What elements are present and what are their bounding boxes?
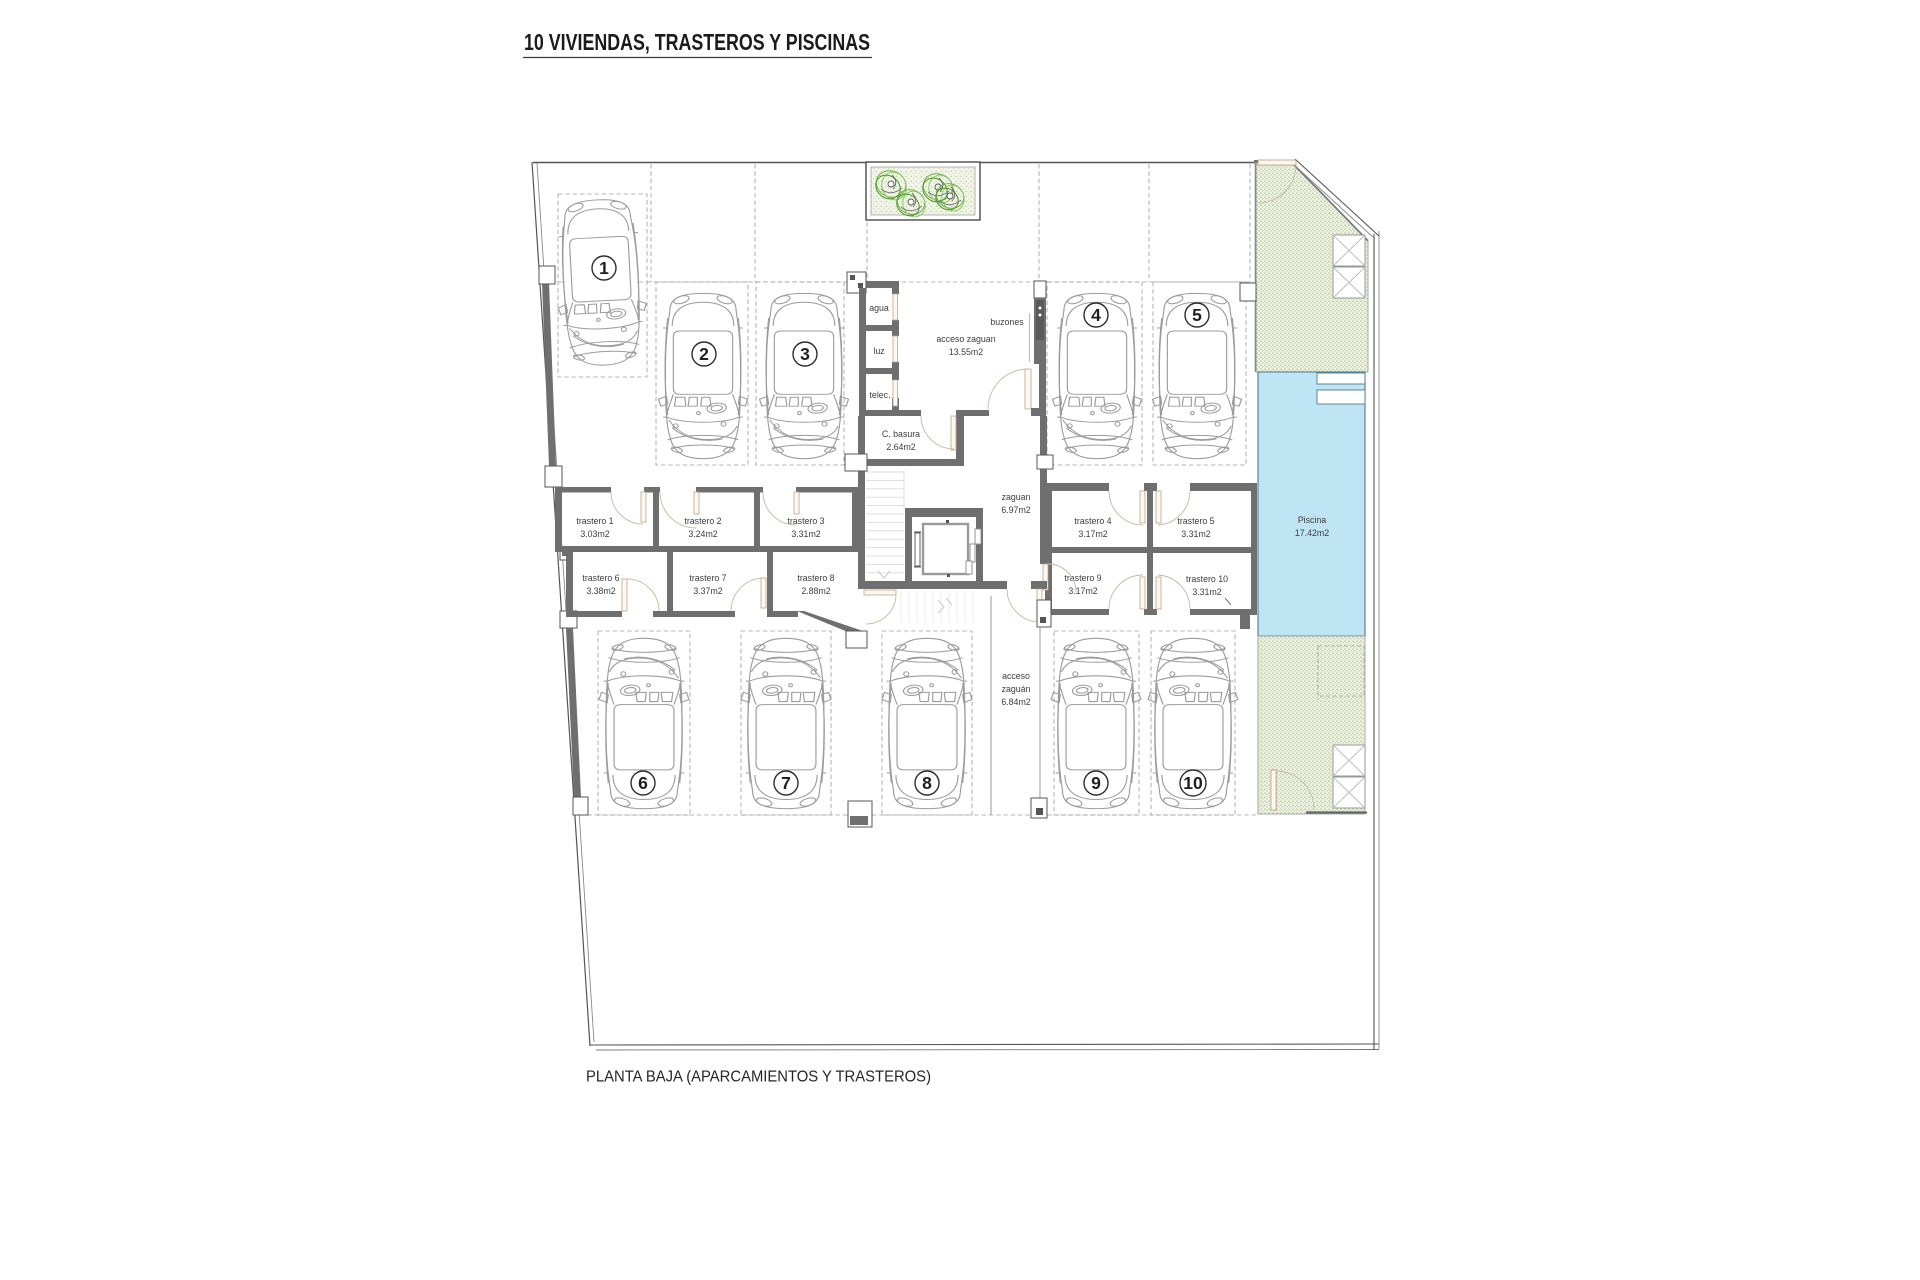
- svg-text:3.17m2: 3.17m2: [1078, 529, 1107, 539]
- svg-text:buzones: buzones: [990, 317, 1024, 327]
- svg-text:agua: agua: [869, 303, 889, 313]
- svg-text:3.24m2: 3.24m2: [688, 529, 717, 539]
- svg-text:3: 3: [800, 344, 810, 364]
- svg-text:acceso zaguan: acceso zaguan: [936, 334, 995, 344]
- svg-text:trastero 10: trastero 10: [1186, 574, 1228, 584]
- svg-text:1: 1: [599, 258, 609, 278]
- svg-text:3.37m2: 3.37m2: [693, 586, 722, 596]
- svg-text:trastero 7: trastero 7: [689, 573, 726, 583]
- svg-text:3.31m2: 3.31m2: [1192, 587, 1221, 597]
- svg-text:Piscina: Piscina: [1298, 515, 1326, 525]
- svg-text:trastero 2: trastero 2: [684, 516, 721, 526]
- svg-text:trastero 4: trastero 4: [1074, 516, 1111, 526]
- svg-text:8: 8: [922, 773, 932, 793]
- svg-text:2: 2: [699, 344, 709, 364]
- svg-text:luz: luz: [873, 346, 884, 356]
- svg-text:trastero 6: trastero 6: [582, 573, 619, 583]
- svg-text:trastero 5: trastero 5: [1177, 516, 1214, 526]
- svg-text:acceso: acceso: [1002, 671, 1030, 681]
- svg-text:C. basura: C. basura: [882, 429, 920, 439]
- svg-text:zaguán: zaguán: [1002, 684, 1031, 694]
- svg-text:17.42m2: 17.42m2: [1295, 528, 1329, 538]
- svg-text:7: 7: [781, 773, 791, 793]
- svg-text:4: 4: [1091, 305, 1101, 325]
- svg-text:3.31m2: 3.31m2: [1181, 529, 1210, 539]
- svg-text:13.55m2: 13.55m2: [949, 347, 983, 357]
- svg-text:zaguan: zaguan: [1002, 492, 1031, 502]
- svg-text:5: 5: [1192, 305, 1202, 325]
- svg-text:3.31m2: 3.31m2: [791, 529, 820, 539]
- svg-text:2.88m2: 2.88m2: [801, 586, 830, 596]
- svg-text:6: 6: [638, 773, 648, 793]
- svg-text:PLANTA BAJA (APARCAMIENTOS Y T: PLANTA BAJA (APARCAMIENTOS Y TRASTEROS): [586, 1069, 931, 1086]
- svg-text:trastero 8: trastero 8: [797, 573, 834, 583]
- svg-text:6.84m2: 6.84m2: [1001, 697, 1030, 707]
- svg-text:3.03m2: 3.03m2: [580, 529, 609, 539]
- svg-text:10: 10: [1183, 773, 1203, 793]
- svg-text:telec.: telec.: [869, 390, 890, 400]
- svg-text:10 VIVIENDAS, TRASTEROS Y PISC: 10 VIVIENDAS, TRASTEROS Y PISCINAS: [524, 29, 870, 55]
- svg-text:trastero 1: trastero 1: [576, 516, 613, 526]
- svg-text:6.97m2: 6.97m2: [1001, 505, 1030, 515]
- svg-text:2.64m2: 2.64m2: [886, 442, 915, 452]
- svg-text:9: 9: [1091, 773, 1101, 793]
- svg-text:3.17m2: 3.17m2: [1068, 586, 1097, 596]
- svg-text:3.38m2: 3.38m2: [586, 586, 615, 596]
